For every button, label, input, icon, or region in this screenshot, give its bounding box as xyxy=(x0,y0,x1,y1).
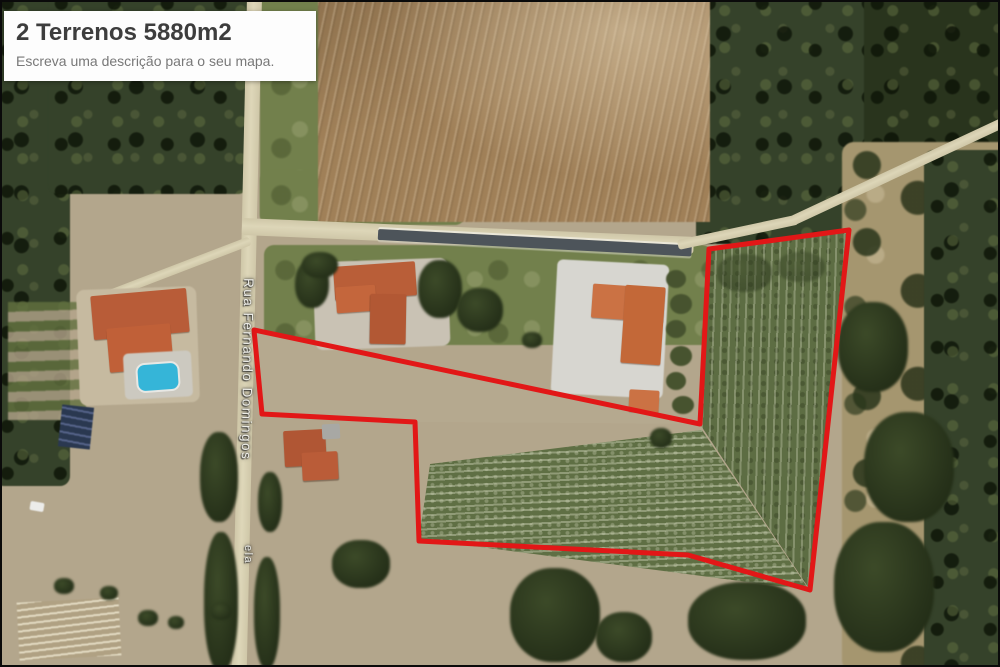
tree-cluster xyxy=(258,472,282,532)
tree-cluster xyxy=(332,540,390,588)
tree-cluster xyxy=(838,302,908,392)
tree-cluster xyxy=(596,612,652,662)
estate-roof xyxy=(620,285,665,366)
garden-plots-left xyxy=(8,302,86,420)
olive-tree xyxy=(666,372,686,390)
road-label-secondary: ela xyxy=(236,534,254,576)
tree-cluster xyxy=(510,568,600,662)
white-vehicle xyxy=(29,501,44,512)
shed-roof xyxy=(322,424,341,440)
tree-cluster xyxy=(302,252,338,278)
map-description-placeholder[interactable]: Escreva uma descrição para o seu mapa. xyxy=(16,53,304,70)
tree-cluster xyxy=(457,288,503,332)
olive-tree xyxy=(670,294,692,314)
olive-tree xyxy=(670,346,692,366)
bush xyxy=(210,602,232,620)
tree-cluster xyxy=(650,428,672,448)
swimming-pool xyxy=(135,361,181,394)
bush xyxy=(138,610,158,626)
shrub-patch xyxy=(777,252,825,282)
forest-right-column xyxy=(924,150,1000,667)
tree-cluster xyxy=(522,332,542,348)
bush xyxy=(100,586,118,600)
olive-tree xyxy=(666,270,686,288)
tree-cluster xyxy=(688,582,806,660)
bush xyxy=(168,616,184,629)
house-roof-south xyxy=(301,451,338,481)
road-label-rua-fernando-domingos: Rua Fernando Domingos xyxy=(231,208,257,530)
house-roof xyxy=(370,294,407,345)
tree-cluster xyxy=(204,532,238,667)
map-canvas[interactable]: Rua Fernando Domingos ela 2 Terrenos 588… xyxy=(0,0,1000,667)
shrub-patch xyxy=(717,254,772,292)
olive-tree xyxy=(672,396,694,414)
map-title-card[interactable]: 2 Terrenos 5880m2 Escreva uma descrição … xyxy=(4,11,316,81)
plowed-field-top xyxy=(318,0,710,222)
tree-cluster xyxy=(834,522,934,652)
tree-cluster xyxy=(418,260,462,318)
bush xyxy=(54,578,74,594)
tree-cluster xyxy=(864,412,954,522)
solar-panels xyxy=(58,404,94,449)
row-field-bottom-left xyxy=(17,597,122,660)
tree-cluster xyxy=(254,557,280,667)
map-title[interactable]: 2 Terrenos 5880m2 xyxy=(16,20,304,46)
olive-tree xyxy=(666,320,686,338)
